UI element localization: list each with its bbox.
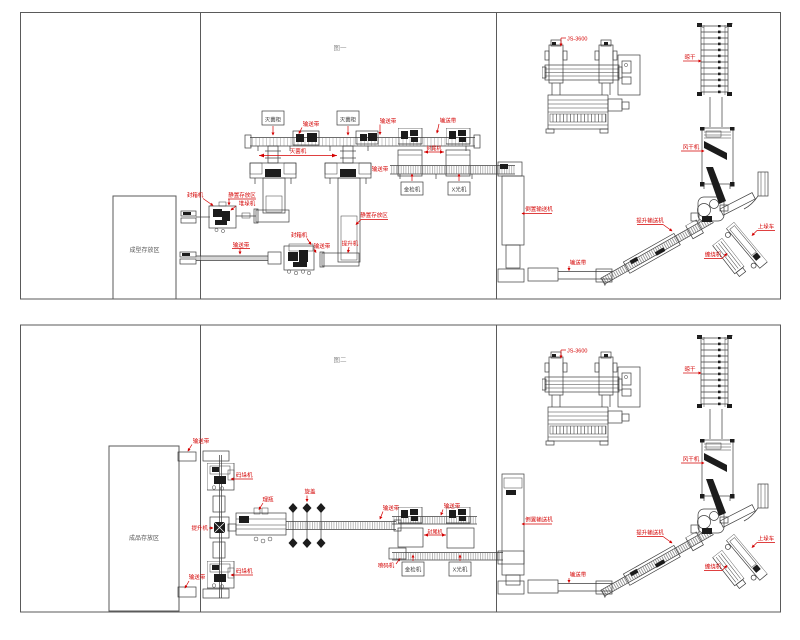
row-b-labels: 输送带 封箱机 输送带 提升机 bbox=[232, 231, 359, 254]
js3600-fig2 bbox=[542, 352, 640, 445]
buffer-column-1 bbox=[263, 178, 285, 213]
spine-line bbox=[178, 451, 234, 598]
det-box2-label: X光机 bbox=[452, 186, 467, 194]
layout-drawing: 图一 成型存放区 灭菌柜 灭菌柜 输送带 灭菌机 静 bbox=[0, 0, 800, 640]
svg-text:JS-3600: JS-3600 bbox=[567, 349, 588, 355]
belt-r2-label: 输送带 bbox=[440, 117, 457, 125]
dim-pair-label: 封尾机 bbox=[426, 145, 441, 152]
storage-area-label: 成型存放区 bbox=[129, 246, 159, 254]
belt-lower-left-label: 输送带 bbox=[372, 165, 389, 173]
lift-label: 提升机 bbox=[191, 524, 208, 532]
belt-b2-label: 输送带 bbox=[314, 242, 331, 250]
storage-area-box-2: 成品存放区 bbox=[109, 446, 179, 611]
towers-dimension: 灭菌机 bbox=[259, 147, 337, 157]
dryer-frame-fig1 bbox=[700, 126, 735, 204]
inverter2-label: 倒置输送机 bbox=[525, 516, 553, 524]
exit-belt2-label: 输送带 bbox=[570, 571, 587, 579]
truck2-label: 上垛车 bbox=[758, 535, 775, 543]
sealer-b-label: 封箱机 bbox=[291, 231, 308, 239]
belt-mid-label: 输送带 bbox=[383, 504, 400, 512]
drying-tower-fig1 bbox=[695, 23, 734, 127]
storage-area2-label: 成品存放区 bbox=[129, 534, 159, 542]
det2-box2-label: X光机 bbox=[453, 566, 468, 574]
belt-r1-label: 输送带 bbox=[380, 117, 397, 125]
figure1-panel: 图一 成型存放区 灭菌柜 灭菌柜 输送带 灭菌机 静 bbox=[21, 13, 781, 300]
outfeed-label: 输送带 bbox=[189, 573, 206, 581]
lower-transfer-belt: 输送带 bbox=[372, 165, 515, 179]
palletizer1-label: 码垛机 bbox=[236, 471, 253, 479]
head-cluster-2 bbox=[691, 484, 768, 534]
staging-a-label: 静置存放区 bbox=[228, 191, 256, 199]
inverter-column: 倒置输送机 bbox=[498, 162, 553, 268]
staging-tower-label: 静置存放区 bbox=[360, 211, 388, 219]
right-machine-pair-2: 封尾机 输送带 金检机 X光机 bbox=[392, 502, 503, 576]
svg-text:JS-3600: JS-3600 bbox=[567, 37, 588, 43]
tower2-box-label: 灭菌柜 bbox=[340, 116, 357, 124]
exit-belt-label: 输送带 bbox=[570, 259, 587, 267]
js3600-label-fig1: JS-3600 bbox=[561, 37, 588, 47]
head-cluster bbox=[691, 172, 768, 222]
buffer-column-2: 静置存放区 bbox=[338, 178, 388, 262]
dry-tower-label: 晾干 bbox=[684, 53, 696, 61]
svg-text:灭菌机: 灭菌机 bbox=[290, 147, 307, 155]
fig2-border bbox=[21, 325, 781, 612]
palletizer-cluster-2 bbox=[207, 561, 234, 588]
lift-b-label: 提升机 bbox=[342, 240, 359, 248]
cad-layout-page: 图一 成型存放区 灭菌柜 灭菌柜 输送带 灭菌机 静 bbox=[0, 0, 800, 640]
fig1-border bbox=[21, 13, 781, 300]
belt-top-label: 输送带 bbox=[299, 120, 320, 134]
coder-label: 喷码机 bbox=[378, 562, 395, 570]
figure2-panel: 图二 成品存放区 输送带 码垛机 提升机 码垛机 输送带 bbox=[21, 325, 781, 612]
dim-pair2-label: 封尾机 bbox=[427, 529, 442, 536]
wrapper-label: 缠绕机 bbox=[705, 251, 722, 259]
dryer2-label: 风干机 bbox=[683, 455, 700, 463]
sealer-a-label: 封箱机 bbox=[187, 191, 204, 199]
drying-tower-fig2 bbox=[695, 335, 734, 439]
wrapper2-label: 缠绕机 bbox=[705, 563, 722, 571]
infeed-label: 输送带 bbox=[193, 437, 210, 445]
storage-area-box: 成型存放区 bbox=[113, 196, 176, 299]
det2-box1-label: 金检机 bbox=[405, 566, 422, 574]
tower1-box-label: 灭菌柜 bbox=[265, 116, 282, 124]
inverter-column-2: 倒置输送机 bbox=[498, 474, 553, 585]
dryer-frame-fig2 bbox=[700, 438, 735, 516]
palletizer2-label: 码垛机 bbox=[236, 567, 253, 575]
fig1-caption: 图一 bbox=[334, 44, 348, 52]
unscrambler-label: 理瓶 bbox=[262, 496, 274, 504]
detector-label-boxes: 金检机 X光机 bbox=[401, 174, 470, 195]
dryer-label: 风干机 bbox=[683, 143, 700, 151]
spine-labels: 输送带 码垛机 提升机 码垛机 输送带 bbox=[185, 437, 253, 588]
exit-belt: 输送带 bbox=[498, 259, 612, 283]
js3600-label-fig2: JS-3600 bbox=[561, 349, 588, 359]
truck-label: 上垛车 bbox=[758, 223, 775, 231]
incline2-label: 提升输送机 bbox=[636, 529, 664, 537]
palletizer-a-label: 堆垛机 bbox=[239, 200, 256, 208]
belt-r-label: 输送带 bbox=[444, 502, 461, 510]
row-a-labels: 封箱机 静置存放区 堆垛机 bbox=[187, 191, 257, 210]
det-box1-label: 金检机 bbox=[404, 186, 421, 194]
fig2-caption: 图二 bbox=[334, 356, 348, 364]
palletizer-cluster-1 bbox=[207, 463, 234, 490]
svg-text:输送带: 输送带 bbox=[303, 120, 320, 128]
dry-tower2-label: 晾干 bbox=[684, 365, 696, 373]
js3600-fig1 bbox=[542, 40, 640, 133]
capper-label: 旋盖 bbox=[304, 488, 316, 496]
incline-label: 提升输送机 bbox=[636, 217, 664, 225]
sterilizer-line-belt bbox=[245, 131, 480, 151]
filling-line: 理瓶 旋盖 输送带 喷码机 bbox=[228, 488, 406, 570]
exit-belt-2: 输送带 bbox=[498, 571, 612, 595]
row-b-line bbox=[180, 244, 359, 275]
inverter-label: 倒置输送机 bbox=[525, 205, 553, 213]
belt-b1-label: 输送带 bbox=[233, 241, 250, 249]
